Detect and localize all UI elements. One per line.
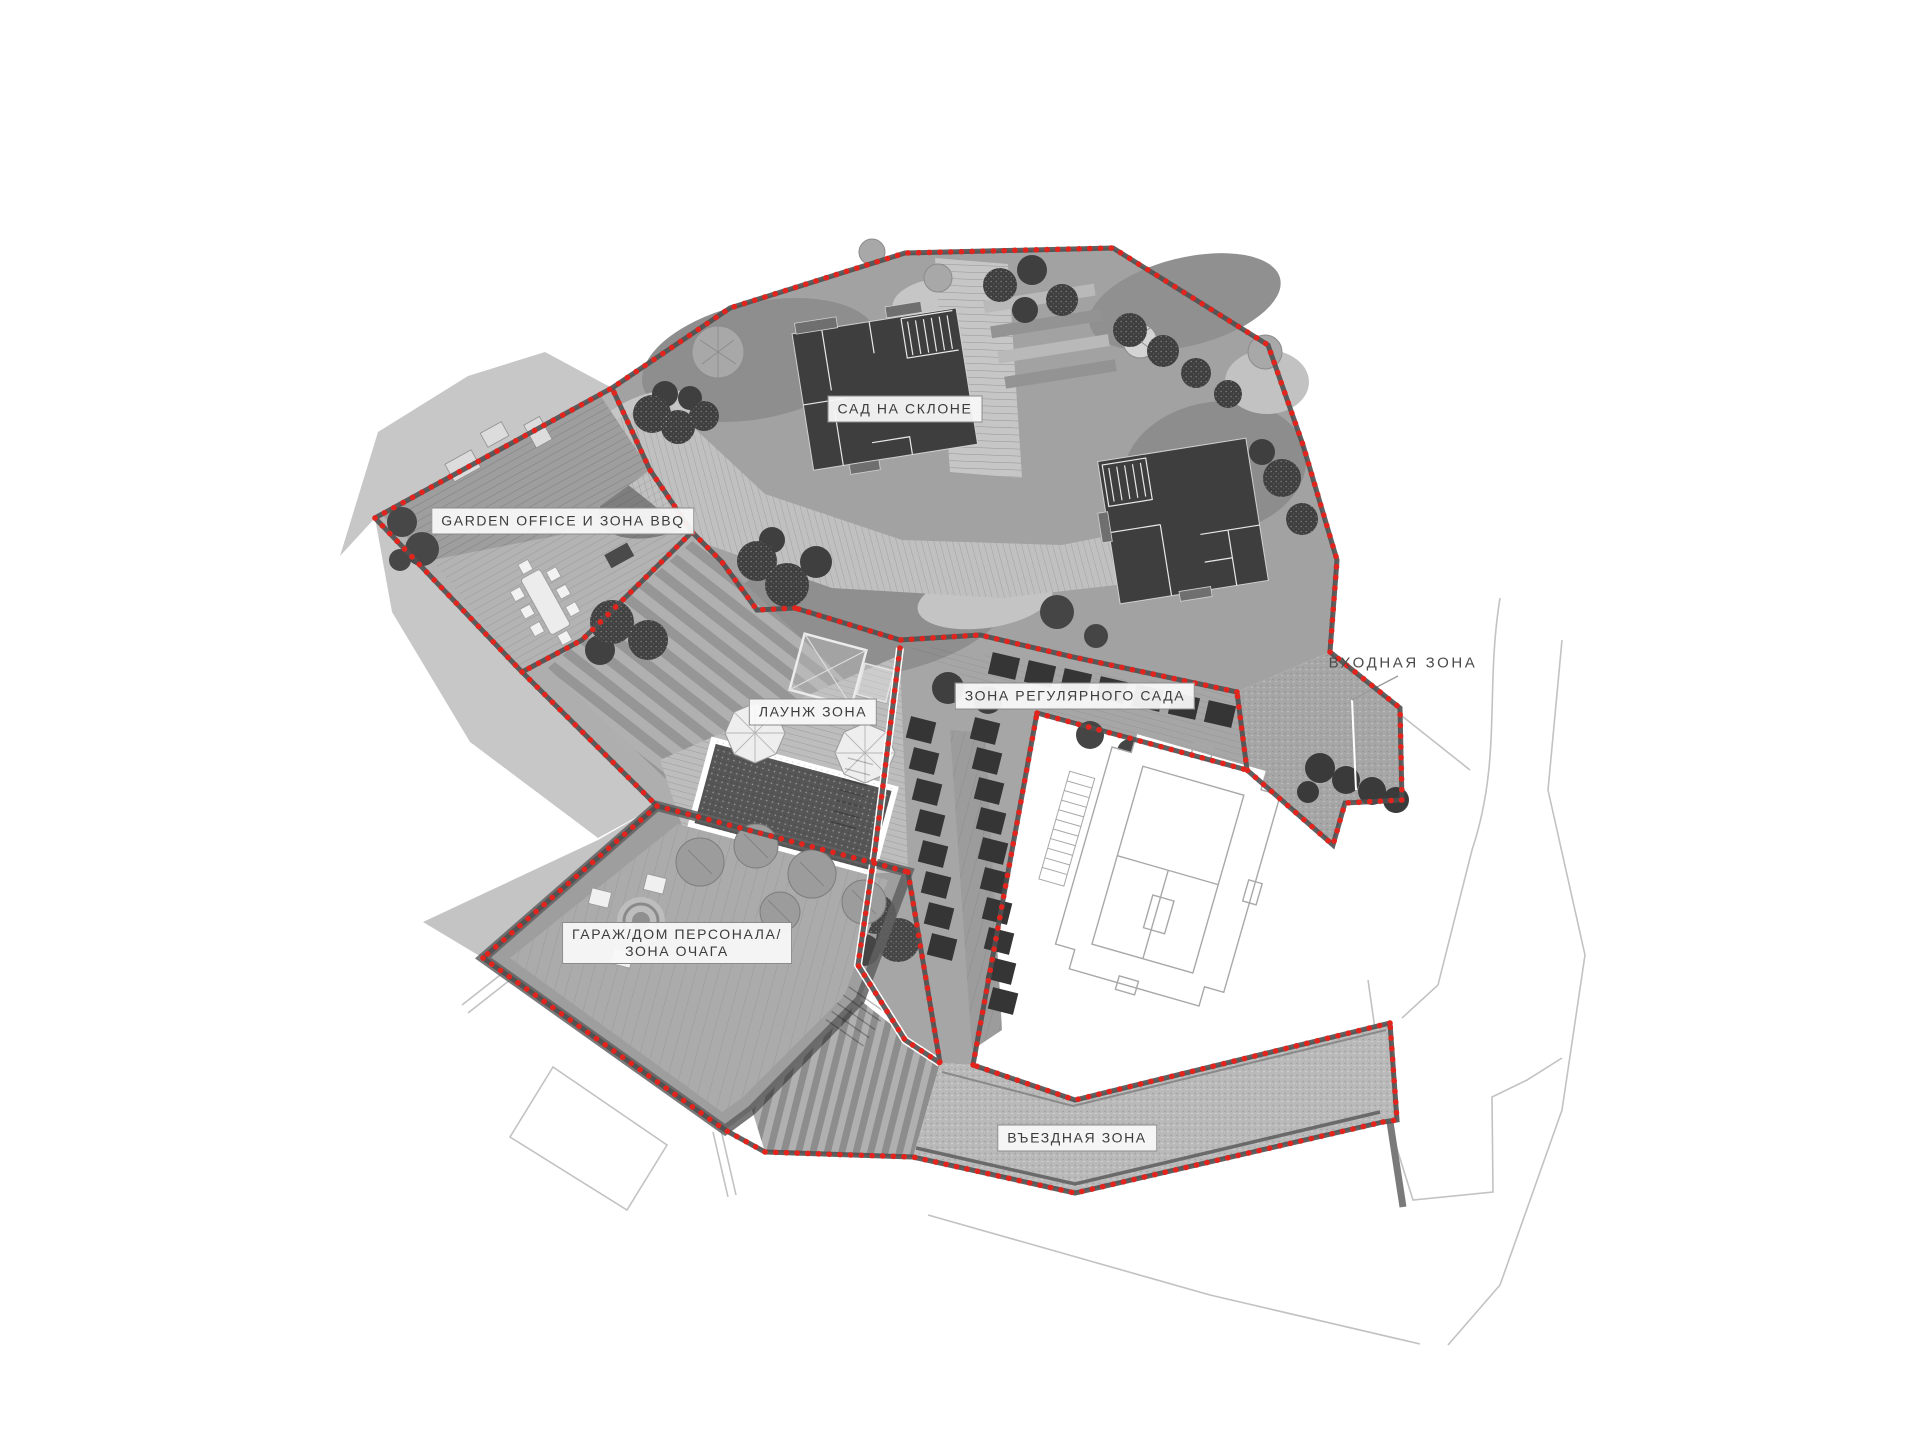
label-lounge-text: ЛАУНЖ ЗОНА [759,704,867,720]
masterplan-canvas: САД НА СКЛОНЕ GARDEN OFFICE И ЗОНА BBQ Л… [0,0,1920,1440]
label-slope-garden: САД НА СКЛОНЕ [828,396,983,423]
label-garden-office-bbq-text: GARDEN OFFICE И ЗОНА BBQ [441,513,684,529]
label-driveway-text: ВЪЕЗДНАЯ ЗОНА [1007,1130,1147,1146]
label-garage-staff-hearth: ГАРАЖ/ДОМ ПЕРСОНАЛА/ ЗОНА ОЧАГА [562,922,792,964]
path-lines-south [713,1130,736,1197]
entrance-context-line [1402,716,1470,770]
label-driveway: ВЪЕЗДНАЯ ЗОНА [997,1125,1157,1152]
label-regular-garden-text: ЗОНА РЕГУЛЯРНОГО САДА [965,688,1185,704]
road-outline-outer [1448,640,1585,1345]
label-slope-garden-text: САД НА СКЛОНЕ [838,401,973,417]
context-line-bottom [928,1215,1420,1344]
label-entrance: ВХОДНАЯ ЗОНА [1329,655,1478,672]
site-plan-drawing [0,0,1920,1440]
driveway-content [752,1000,1397,1193]
label-garage-line1: ГАРАЖ/ДОМ ПЕРСОНАЛА/ [572,926,782,943]
parcel-outline-bottom-left [510,1067,667,1210]
driveway-gravel [913,1023,1397,1193]
label-regular-garden: ЗОНА РЕГУЛЯРНОГО САДА [955,683,1195,710]
label-garden-office-bbq: GARDEN OFFICE И ЗОНА BBQ [431,508,694,535]
label-entrance-text: ВХОДНАЯ ЗОНА [1329,655,1478,672]
label-lounge: ЛАУНЖ ЗОНА [749,699,877,726]
label-garage-line2: ЗОНА ОЧАГА [572,943,782,960]
road-edge-stub [1390,1122,1403,1207]
